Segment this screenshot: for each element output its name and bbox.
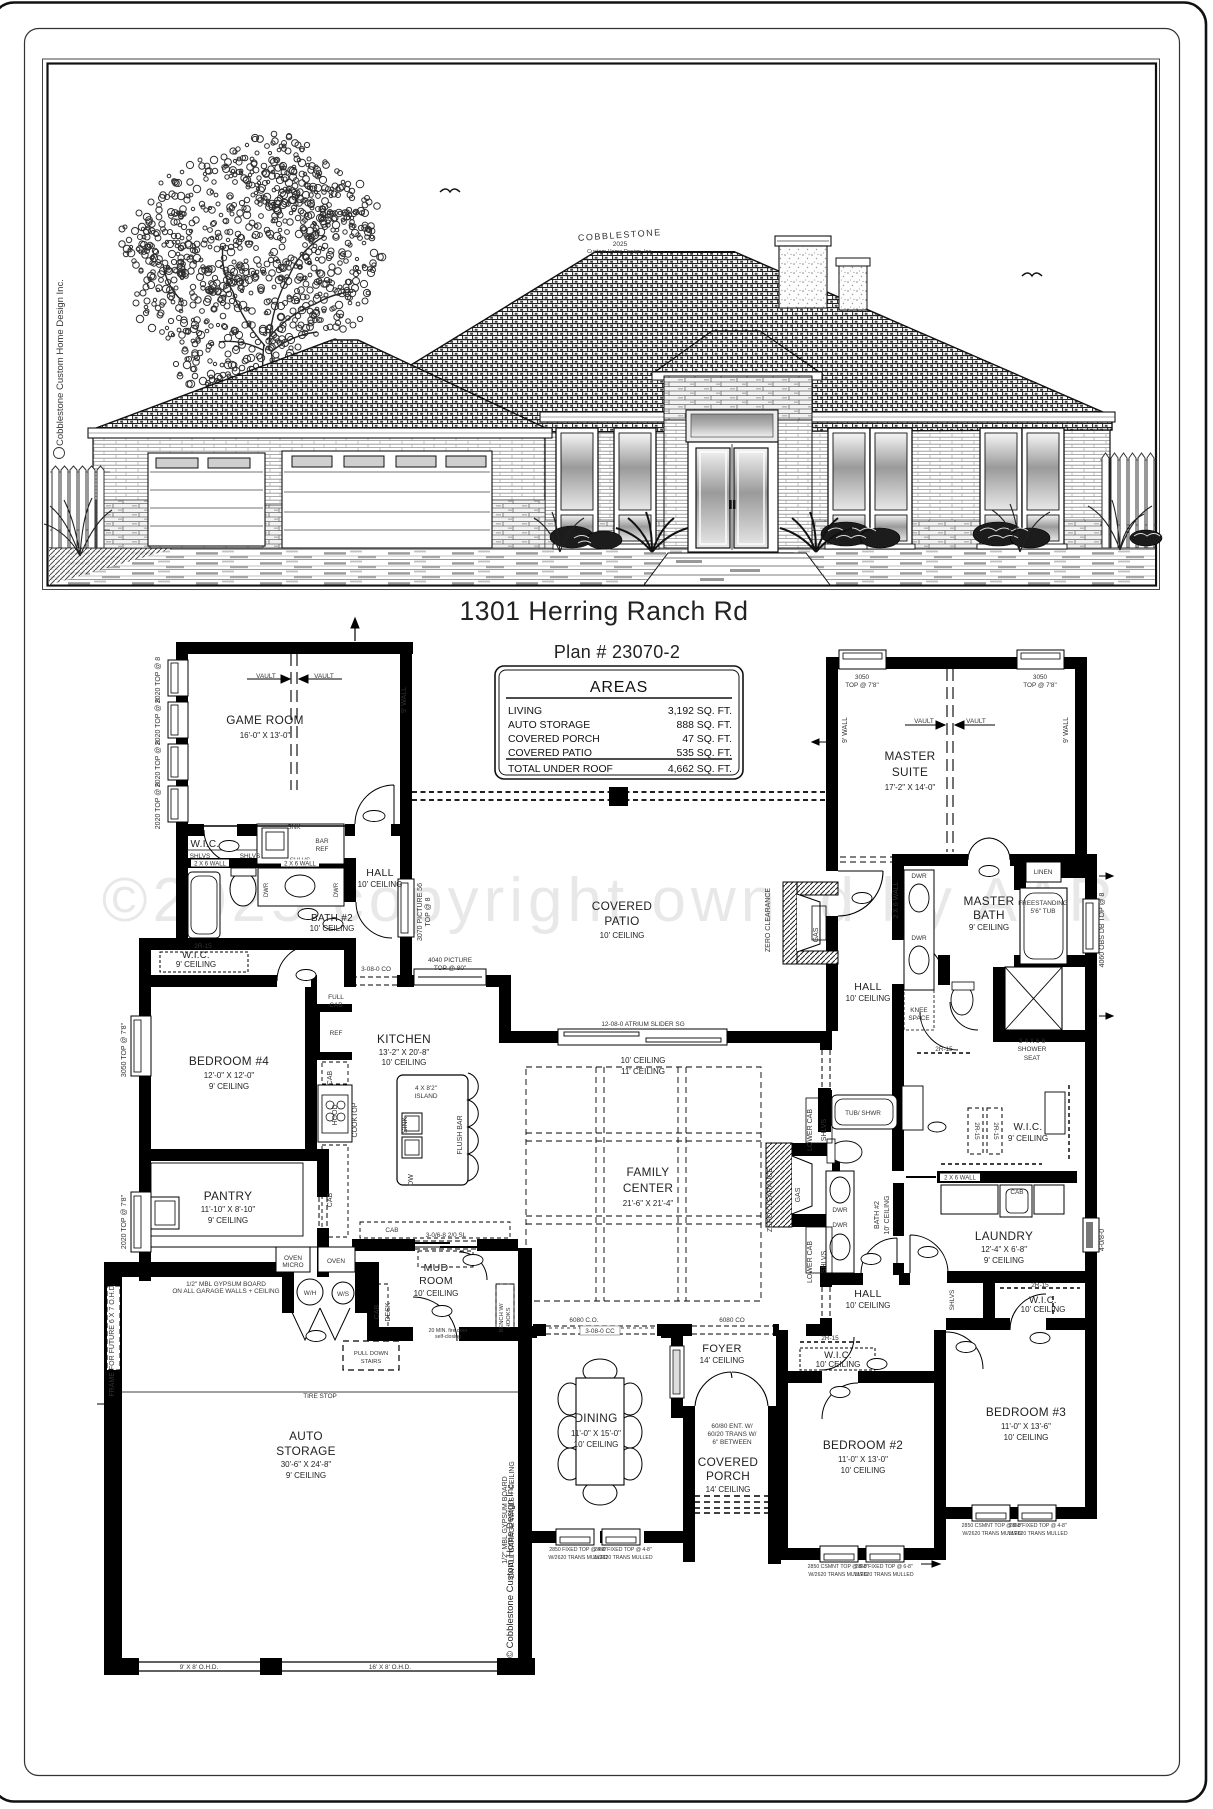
svg-text:CAB: CAB [327,1192,334,1207]
svg-text:2 X 6 WALL: 2 X 6 WALL [194,862,226,868]
svg-text:10' CEILING: 10' CEILING [310,924,355,933]
svg-text:KNEE: KNEE [910,1007,927,1014]
svg-text:self-closing: self-closing [435,1334,461,1340]
svg-text:W/2620 TRANS MULLED: W/2620 TRANS MULLED [854,1572,914,1578]
svg-text:LIVING: LIVING [508,706,542,717]
svg-text:10' CEILING: 10' CEILING [846,1301,891,1310]
svg-text:ROOM: ROOM [419,1275,453,1287]
svg-text:10' CEILING: 10' CEILING [841,1466,886,1475]
svg-text:BEDROOM #4: BEDROOM #4 [189,1054,269,1068]
svg-text:VAULT: VAULT [256,673,276,680]
svg-text:6" BETWEEN: 6" BETWEEN [712,1439,752,1446]
svg-text:2R-15: 2R-15 [935,1046,953,1053]
svg-text:GAS: GAS [795,1187,802,1202]
svg-text:TOP @ 7'8": TOP @ 7'8" [1023,682,1057,689]
svg-text:4 X 8'2": 4 X 8'2" [415,1085,437,1092]
svg-text:ISLAND: ISLAND [414,1093,437,1100]
svg-text:12'-4" X 6'-8": 12'-4" X 6'-8" [981,1245,1027,1254]
svg-text:SHLVS: SHLVS [949,1290,956,1310]
svg-text:SINK: SINK [402,1117,409,1134]
svg-text:COOKTOP: COOKTOP [352,1102,359,1137]
svg-text:47 SQ. FT.: 47 SQ. FT. [682,734,732,745]
svg-text:2850 FIXED TOP @ 4-8": 2850 FIXED TOP @ 4-8" [1009,1523,1067,1529]
svg-text:4040 PICTURE: 4040 PICTURE [428,957,472,964]
svg-text:HOOKS: HOOKS [506,1307,512,1328]
svg-text:9' CEILING: 9' CEILING [209,1082,249,1091]
svg-text:CAB: CAB [329,1002,342,1009]
svg-text:DWR: DWR [264,882,270,897]
svg-text:AREAS: AREAS [590,679,648,696]
svg-text:BATH #2: BATH #2 [874,1201,881,1229]
svg-text:9' CEILING: 9' CEILING [208,1216,248,1225]
svg-text:ZERO CLEARANCE: ZERO CLEARANCE [767,1168,774,1233]
svg-text:REF: REF [330,1030,343,1037]
svg-text:2R-15: 2R-15 [992,1122,999,1140]
svg-text:6080 C.O.: 6080 C.O. [569,1317,598,1324]
svg-text:CAB: CAB [1010,1189,1023,1196]
svg-text:W.I.C.: W.I.C. [1013,1122,1042,1133]
svg-text:FAMILY: FAMILY [627,1165,670,1179]
svg-text:2020 TOP @ 8: 2020 TOP @ 8 [155,783,162,830]
svg-text:VAULT: VAULT [914,718,934,725]
svg-text:STAIRS: STAIRS [361,1359,382,1365]
svg-text:PORCH: PORCH [706,1469,750,1483]
svg-text:2020 TOP @ 8: 2020 TOP @ 8 [155,699,162,746]
svg-text:10' CEILING: 10' CEILING [1021,1305,1066,1314]
svg-text:11'-0" X 15'-0": 11'-0" X 15'-0" [571,1429,621,1438]
svg-text:TOP @ 8: TOP @ 8 [425,897,432,926]
svg-text:10' CEILING: 10' CEILING [382,1058,427,1067]
svg-text:BAR: BAR [315,838,329,845]
svg-text:10' CEILING: 10' CEILING [574,1440,619,1449]
svg-text:10' CEILING: 10' CEILING [816,1360,861,1369]
svg-text:GAME ROOM: GAME ROOM [226,713,303,727]
svg-text:3-08-0 CO: 3-08-0 CO [361,966,391,973]
svg-text:2850 FIXED TOP @ 4-8": 2850 FIXED TOP @ 4-8" [594,1547,652,1553]
svg-text:SPACE: SPACE [908,1015,929,1022]
svg-text:10' CEILING: 10' CEILING [358,880,403,889]
svg-text:CAB: CAB [374,1304,381,1319]
svg-text:2R-15: 2R-15 [973,1122,980,1140]
svg-text:COVERED PATIO: COVERED PATIO [508,748,592,759]
svg-text:2850 FIXED TOP @ 6-8": 2850 FIXED TOP @ 6-8" [855,1564,913,1570]
svg-text:5'6" TUB: 5'6" TUB [1030,908,1055,915]
svg-text:10' CEILING: 10' CEILING [621,1056,666,1065]
svg-text:HALL: HALL [854,981,881,993]
svg-text:BATH #2: BATH #2 [311,913,353,924]
svg-text:SHLVS: SHLVS [240,853,260,860]
svg-text:TIRE STOP: TIRE STOP [303,1393,337,1400]
svg-text:10' CEILING: 10' CEILING [1004,1433,1049,1442]
svg-text:MASTER: MASTER [885,749,936,763]
svg-text:30'-6" X 24'-8": 30'-6" X 24'-8" [281,1460,332,1469]
svg-text:17'-2" X 14'-0": 17'-2" X 14'-0" [885,783,936,792]
svg-text:16'-0" X 13'-0": 16'-0" X 13'-0" [240,731,291,740]
svg-text:2020 TOP @ 8: 2020 TOP @ 8 [155,657,162,704]
svg-text:DINING: DINING [574,1411,617,1425]
svg-text:2025: 2025 [613,241,628,248]
svg-text:MICRO: MICRO [282,1262,303,1269]
svg-text:W.I.C.: W.I.C. [190,839,219,850]
svg-text:SHLVS: SHLVS [821,1250,828,1273]
svg-text:3-08-0 CC: 3-08-0 CC [585,1328,615,1335]
svg-text:LAUNDRY: LAUNDRY [975,1229,1033,1243]
svg-text:2R-15: 2R-15 [821,1335,839,1342]
svg-text:SHOWER: SHOWER [1018,1046,1047,1053]
svg-text:2 X 6 WALL: 2 X 6 WALL [944,1176,976,1182]
svg-text:3,192 SQ. FT.: 3,192 SQ. FT. [668,706,732,717]
svg-text:SNK: SNK [287,824,301,831]
svg-text:FREESTANDING: FREESTANDING [1018,900,1068,907]
svg-text:DWR: DWR [911,873,927,880]
svg-text:3-0/6-8 2/0 SL: 3-0/6-8 2/0 SL [426,1232,467,1239]
svg-text:4-0/8-0: 4-0/8-0 [1099,1229,1106,1251]
svg-text:COVERED: COVERED [592,899,652,913]
svg-text:TOTAL UNDER ROOF: TOTAL UNDER ROOF [508,764,613,775]
svg-text:60/80 ENT. W/: 60/80 ENT. W/ [711,1423,752,1430]
svg-text:STORAGE: STORAGE [276,1444,336,1458]
svg-text:14' CEILING: 14' CEILING [706,1485,751,1494]
svg-text:16' X 8' O.H.D.: 16' X 8' O.H.D. [369,1664,411,1671]
svg-text:W/S: W/S [337,1291,349,1298]
svg-text:21'-6" X 21'-4": 21'-6" X 21'-4" [623,1199,674,1208]
svg-text:REF: REF [316,846,329,853]
svg-text:W/H: W/H [304,1290,317,1297]
svg-text:ZERO CLEARANCE: ZERO CLEARANCE [765,888,772,953]
svg-text:GAS: GAS [813,927,820,942]
svg-text:HOOD: HOOD [332,1105,339,1126]
svg-text:3070 PICTURE 56: 3070 PICTURE 56 [417,883,424,941]
svg-text:11' CEILING: 11' CEILING [621,1067,665,1076]
svg-text:2020 TOP @ 7'8": 2020 TOP @ 7'8" [121,1194,128,1249]
svg-text:BENCH W/: BENCH W/ [499,1303,505,1332]
svg-text:4,662 SQ. FT.: 4,662 SQ. FT. [668,764,732,775]
svg-text:LINEN: LINEN [1034,869,1053,876]
svg-text:TUB/ SHWR: TUB/ SHWR [845,1110,881,1117]
svg-text:PULL DOWN: PULL DOWN [354,1351,388,1357]
svg-text:© Cobblestone Custom Home Desi: © Cobblestone Custom Home Design Inc. [505,1482,516,1659]
svg-text:LOWER CAB: LOWER CAB [807,1241,814,1283]
svg-text:TOP @ 7'8": TOP @ 7'8" [845,682,879,689]
svg-text:2R-15: 2R-15 [194,943,212,950]
svg-text:FOYER: FOYER [702,1343,741,1355]
svg-text:Custom Home Design, Inc.: Custom Home Design, Inc. [587,249,653,255]
svg-text:HALL: HALL [366,867,393,879]
svg-text:FLUSH BAR: FLUSH BAR [457,1115,464,1154]
svg-text:12'-0" X 12'-0": 12'-0" X 12'-0" [204,1071,255,1080]
svg-text:MUD: MUD [424,1262,449,1274]
svg-text:1301 Herring Ranch Rd: 1301 Herring Ranch Rd [460,596,749,626]
svg-text:COVERED: COVERED [698,1455,758,1469]
svg-text:14' CEILING: 14' CEILING [700,1356,745,1365]
svg-text:2R-15: 2R-15 [1031,1282,1049,1289]
svg-text:2020 TOP @ 8: 2020 TOP @ 8 [155,741,162,788]
svg-text:4060 OBS DB TOP @ 8: 4060 OBS DB TOP @ 8 [1099,892,1106,967]
svg-text:9' WALL: 9' WALL [1063,717,1070,743]
svg-text:11'-10" X 8'-10": 11'-10" X 8'-10" [201,1205,256,1214]
svg-text:10' CEILING: 10' CEILING [414,1289,459,1298]
svg-text:DW: DW [408,1174,415,1186]
svg-text:3050 TOP @ 7'8": 3050 TOP @ 7'8" [121,1022,128,1077]
svg-text:DWR: DWR [911,935,927,942]
svg-text:9' WALL: 9' WALL [401,687,408,713]
svg-text:W/2620 TRANS MULLED: W/2620 TRANS MULLED [1008,1531,1068,1537]
svg-text:HALL: HALL [854,1288,881,1300]
svg-text:12-08-0 ATRIUM SLIDER SG: 12-08-0 ATRIUM SLIDER SG [601,1021,684,1028]
svg-text:AUTO STORAGE: AUTO STORAGE [508,720,590,731]
svg-text:DWR: DWR [334,882,340,897]
svg-text:Cobblestone Custom Home Design: Cobblestone Custom Home Design Inc. [55,279,66,446]
svg-text:3050: 3050 [855,674,870,681]
svg-text:10' CEILING: 10' CEILING [884,1195,891,1234]
svg-text:60/20 TRANS W/: 60/20 TRANS W/ [708,1431,757,1438]
svg-text:9' CEILING: 9' CEILING [969,923,1009,932]
svg-text:DWR: DWR [832,1222,848,1229]
svg-text:PANTRY: PANTRY [204,1189,253,1203]
svg-text:888 SQ. FT.: 888 SQ. FT. [677,720,732,731]
svg-text:CAB: CAB [327,1070,334,1085]
svg-text:DWR: DWR [832,1207,848,1214]
svg-text:VAULT: VAULT [966,718,986,725]
svg-text:6080 CO: 6080 CO [719,1317,745,1324]
svg-text:11'-0" X 13'-6": 11'-0" X 13'-6" [1001,1422,1051,1431]
svg-text:VAULT: VAULT [314,673,334,680]
svg-text:MASTER: MASTER [964,894,1015,908]
svg-text:BEDROOM #3: BEDROOM #3 [986,1405,1066,1419]
svg-text:2 X 6 WALL: 2 X 6 WALL [893,881,900,918]
svg-text:CENTER: CENTER [623,1181,673,1195]
svg-text:SHLVS: SHLVS [821,1118,828,1141]
svg-text:10' CEILING: 10' CEILING [846,994,891,1003]
svg-text:BEDROOM #2: BEDROOM #2 [823,1438,903,1452]
svg-text:3-4 X 6-6: 3-4 X 6-6 [1019,1038,1046,1045]
svg-text:SEAT: SEAT [1024,1055,1040,1062]
svg-text:9' CEILING: 9' CEILING [286,1471,326,1480]
svg-text:FULL: FULL [328,994,344,1001]
svg-text:KITCHEN: KITCHEN [377,1032,431,1046]
svg-text:ON ALL GARAGE WALLS + CEILING: ON ALL GARAGE WALLS + CEILING [172,1288,279,1295]
svg-text:W/2620 TRANS MULLED: W/2620 TRANS MULLED [593,1555,653,1561]
svg-text:2 X 6 WALL: 2 X 6 WALL [284,862,316,868]
svg-text:TOP @ 80": TOP @ 80" [434,965,466,972]
svg-text:11'-0" X 13'-0": 11'-0" X 13'-0" [838,1455,888,1464]
svg-text:SUITE: SUITE [892,765,928,779]
svg-text:OVEN: OVEN [284,1255,302,1262]
svg-text:PATIO: PATIO [604,914,639,928]
svg-text:3050: 3050 [1033,674,1048,681]
svg-text:Plan # 23070-2: Plan # 23070-2 [554,642,680,662]
svg-text:DESK: DESK [385,1302,392,1321]
svg-text:COVERED PORCH: COVERED PORCH [508,734,600,745]
svg-text:FRAME FOR FUTURE 6 X 7 O.H.D.: FRAME FOR FUTURE 6 X 7 O.H.D. [109,1283,116,1396]
svg-text:LOWER CAB: LOWER CAB [807,1109,814,1151]
svg-text:9' CEILING: 9' CEILING [176,960,216,969]
svg-text:9' WALL: 9' WALL [842,717,849,743]
svg-text:CAB: CAB [385,1227,398,1234]
svg-text:10' CEILING: 10' CEILING [600,931,645,940]
svg-text:BATH: BATH [973,908,1005,922]
svg-text:13'-2" X 20'-8": 13'-2" X 20'-8" [379,1048,430,1057]
svg-text:9' CEILING: 9' CEILING [1008,1134,1048,1143]
svg-text:AUTO: AUTO [289,1429,323,1443]
svg-text:1/2" MBL GYPSUM BOARD: 1/2" MBL GYPSUM BOARD [186,1281,266,1288]
svg-text:OVEN: OVEN [327,1258,345,1265]
svg-text:SHLVS: SHLVS [190,853,210,860]
svg-text:535 SQ. FT.: 535 SQ. FT. [677,748,732,759]
svg-text:9' CEILING: 9' CEILING [984,1256,1024,1265]
svg-text:9' X 8' O.H.D.: 9' X 8' O.H.D. [180,1664,219,1671]
